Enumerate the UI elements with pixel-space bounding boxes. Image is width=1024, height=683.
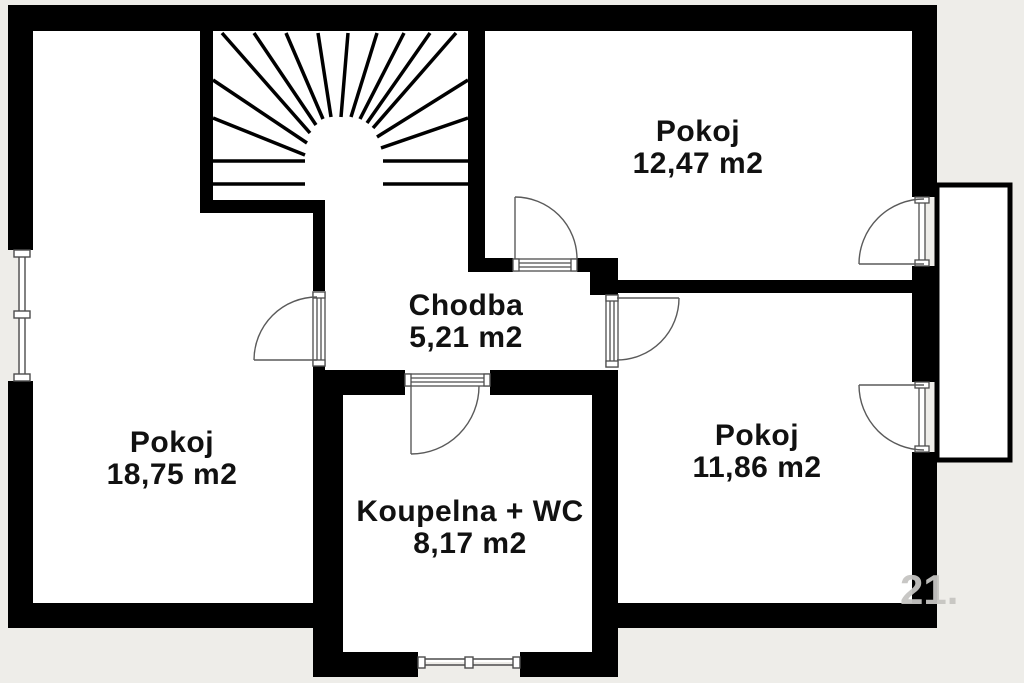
door-frame-right: [606, 295, 618, 367]
door-frame-left: [313, 292, 325, 366]
door-frame-top: [513, 259, 577, 271]
room-label-koupelna: Koupelna + WC: [356, 495, 583, 528]
watermark: 21.: [900, 566, 958, 613]
floor-plan: Pokoj 12,47 m2 Chodba 5,21 m2 Pokoj 18,7…: [0, 0, 1024, 683]
room-area-pokoj-left: 18,75 m2: [107, 458, 238, 491]
room-label-chodba: Chodba: [409, 289, 524, 322]
room-label-pokoj-top: Pokoj: [656, 115, 740, 148]
room-area-koupelna: 8,17 m2: [413, 527, 527, 560]
room-area-pokoj-right: 11,86 m2: [692, 451, 821, 484]
room-label-pokoj-right: Pokoj: [715, 419, 799, 452]
room-area-pokoj-top: 12,47 m2: [633, 147, 764, 180]
door-frame-koupelna: [405, 374, 490, 386]
room-area-chodba: 5,21 m2: [409, 321, 523, 354]
room-label-pokoj-left: Pokoj: [130, 426, 214, 459]
balcony: [937, 185, 1010, 460]
